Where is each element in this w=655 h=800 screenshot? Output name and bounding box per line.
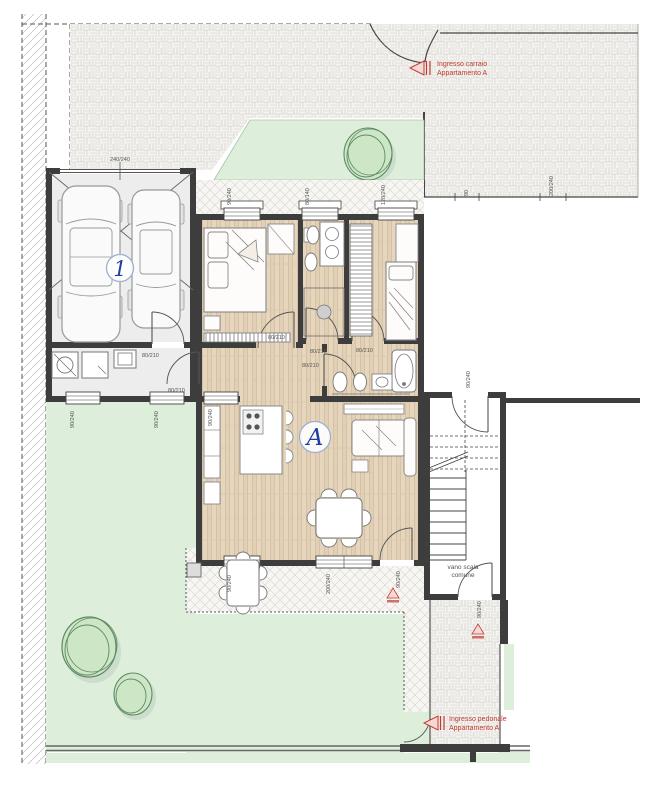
dim-label: 90/240 (466, 371, 472, 388)
pedestrian-entrance-line1: Ingresso pedonale (449, 716, 507, 723)
pedestrian-entrance-line2: Appartamento A (449, 725, 500, 732)
dim-label: 80/210 (302, 363, 319, 369)
garage-number: 1 (113, 257, 126, 281)
dim-label: 240/240 (110, 157, 130, 163)
dim-label: 200/240 (549, 176, 555, 196)
apartment-letter: A (305, 425, 324, 451)
single-bed (386, 262, 416, 340)
column (187, 563, 201, 577)
dim-label: 90 (464, 190, 470, 196)
driveway-entrance-line1: Ingresso carraio (437, 61, 487, 68)
stairwell-label-line2: comune (451, 572, 475, 579)
stairwell-label-line1: vano scala (447, 564, 478, 571)
dim-label: 90/240 (208, 409, 214, 426)
tv-unit (344, 404, 404, 414)
dim-label: 80/210 (310, 349, 327, 355)
dim-label: 90/240 (154, 411, 160, 428)
dresser (268, 224, 294, 254)
driveway-entrance-line2: Appartamento A (437, 70, 488, 77)
french-window (316, 556, 372, 568)
dim-label: 120/240 (381, 185, 387, 205)
dim-label: 80/210 (168, 388, 185, 394)
bathtub (392, 350, 416, 392)
dim-label: 90/240 (70, 411, 76, 428)
window (66, 392, 100, 404)
dim-label: 90/240 (396, 571, 402, 588)
cooktop (243, 410, 263, 434)
chair (236, 607, 250, 614)
dim-label: 90/240 (477, 601, 483, 618)
dim-label: 200/240 (326, 574, 332, 594)
floor-plan-page: 1 (0, 0, 655, 800)
dim-label: 90/240 (227, 575, 233, 592)
dim-label: 80/210 (268, 335, 285, 341)
floor-plan-canvas: 1 (0, 0, 655, 800)
apartment-letter-badge: A (300, 422, 331, 453)
dim-label: 90/240 (227, 188, 233, 205)
car-2 (128, 190, 184, 328)
wardrobe (350, 224, 372, 336)
garage-number-badge: 1 (107, 255, 134, 282)
dim-label: 80/140 (305, 188, 311, 205)
window (204, 392, 238, 404)
dim-label: 80/210 (142, 353, 159, 359)
closet (396, 224, 418, 262)
dim-label: 80/210 (356, 348, 373, 354)
nightstand (204, 316, 220, 330)
double-bed (204, 228, 266, 312)
